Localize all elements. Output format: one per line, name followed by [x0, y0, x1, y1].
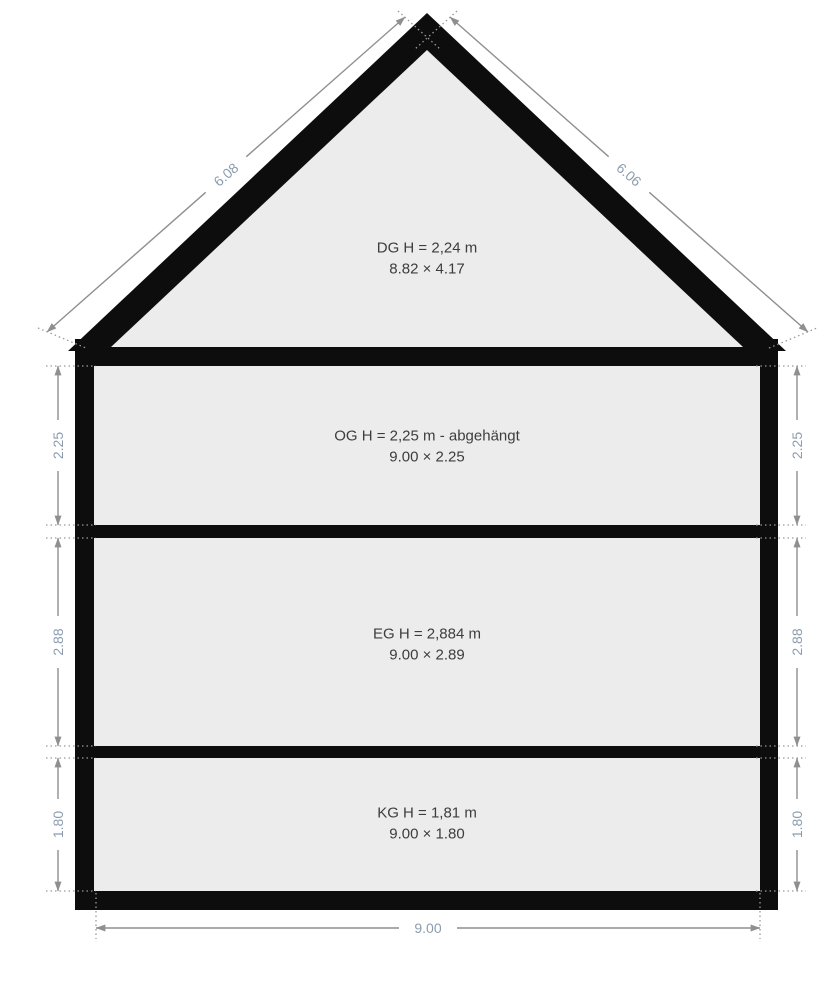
kg-interior	[94, 758, 760, 891]
width-dim-label: 9.00	[414, 920, 441, 936]
floor-size-eg: 9.00 × 2.89	[389, 647, 464, 664]
wall-left	[75, 347, 94, 910]
eave-stub-right	[760, 339, 778, 348]
wall-right	[760, 347, 778, 910]
slab-eg-kg	[75, 746, 778, 758]
kg-dim-label-left: 1.80	[50, 811, 66, 838]
og-interior	[94, 366, 760, 525]
slab-og-eg	[75, 525, 778, 538]
building-section-diagram: 6.08 6.06 2.25 2.88 1.80	[0, 0, 831, 987]
eg-dim-label-right: 2.88	[789, 628, 805, 655]
section-drawing: 6.08 6.06 2.25 2.88 1.80	[0, 0, 831, 987]
og-dim-label-left: 2.25	[50, 432, 66, 459]
eave-stub-left	[75, 339, 94, 348]
floor-size-og: 9.00 × 2.25	[389, 449, 464, 466]
floor-label-eg: EG H = 2,884 m	[373, 626, 481, 643]
kg-dim-label-right: 1.80	[789, 811, 805, 838]
floor-size-kg: 9.00 × 1.80	[389, 826, 464, 843]
floor-size-dg: 8.82 × 4.17	[389, 261, 464, 278]
og-dim-label-right: 2.25	[789, 432, 805, 459]
eg-dim-label-left: 2.88	[50, 628, 66, 655]
floor-label-kg: KG H = 1,81 m	[377, 805, 477, 822]
slab-bottom	[75, 891, 778, 910]
floor-label-og: OG H = 2,25 m - abgehängt	[334, 428, 520, 445]
slab-attic-floor	[75, 347, 778, 366]
floor-label-dg: DG H = 2,24 m	[377, 240, 477, 257]
